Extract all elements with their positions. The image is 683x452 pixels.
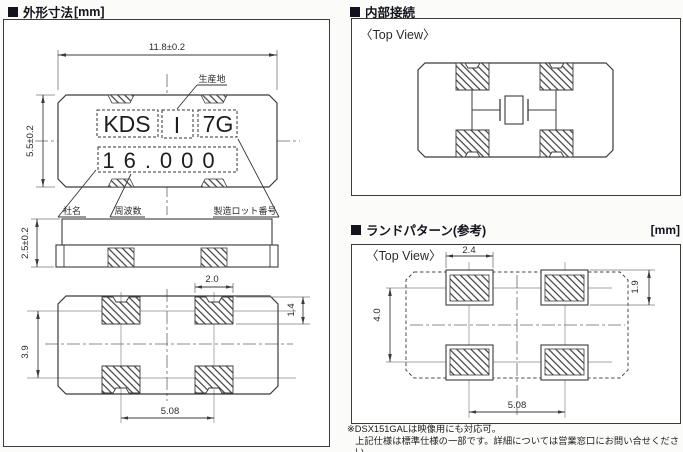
land-pattern-header: ランドパターン(参考) [mm] (351, 220, 680, 239)
land-title-text: ランドパターン(参考) (366, 220, 486, 239)
dim-thickness: 2.5±0.2 (20, 219, 60, 267)
dim-land-col-pitch: 5.08 (469, 400, 565, 414)
internal-view-label: 〈Top View〉 (360, 28, 436, 42)
internal-panel: 〈Top View〉 (351, 18, 681, 196)
dim-row-pitch: 3.9 (20, 311, 40, 378)
marking-frequency: 16.000 (102, 148, 223, 173)
outline-bottom-view-drawing: 2.0 1.4 3.9 (20, 274, 310, 423)
castellation-pad (201, 179, 227, 187)
land-unit: [mm] (651, 223, 680, 237)
marking-company: KDS (103, 111, 150, 137)
side-pad (108, 248, 134, 267)
label-company: 社名 (63, 205, 81, 216)
outline-top-view-drawing: KDS I 7G 16.000 11.8±0.2 (25, 42, 300, 217)
side-body (62, 219, 272, 245)
castellation-pad (108, 95, 134, 103)
section-marker-icon (350, 7, 360, 17)
footnote-line2: 上記仕様は標準仕様の一部です。詳細については営業窓口にお問い合せください。 (347, 436, 681, 452)
dim-col-pitch-text: 5.08 (161, 406, 180, 417)
footnote-line1: ※DSX151GALは映像用にも対応可。 (347, 424, 681, 436)
label-lot: 製造ロット番号 (213, 205, 276, 216)
dim-land-height-text: 1.9 (630, 280, 641, 293)
land-panel: 〈Top View〉 (351, 244, 681, 424)
marking-origin: I (174, 112, 180, 138)
marking-lot: 7G (203, 111, 234, 137)
castellation-pad (108, 179, 134, 187)
label-frequency: 周波数 (114, 205, 141, 216)
dim-body-width: 11.8±0.2 (58, 42, 277, 90)
dim-pad-width-text: 2.0 (205, 274, 218, 285)
dim-col-pitch: 5.08 (121, 406, 214, 420)
section-title-land: ランドパターン(参考) (351, 220, 486, 239)
dim-land-col-pitch-text: 5.08 (508, 400, 527, 411)
dim-land-width: 2.4 (446, 245, 493, 268)
side-base (56, 245, 278, 267)
outline-unit: [mm] (74, 5, 105, 19)
castellation-pad (201, 95, 227, 103)
land-view-label: 〈Top View〉 (366, 249, 442, 263)
section-marker-icon (8, 7, 18, 17)
outline-panel: KDS I 7G 16.000 11.8±0.2 (3, 19, 330, 447)
dim-row-pitch-text: 3.9 (20, 345, 31, 358)
dim-body-height-text: 5.5±0.2 (25, 125, 36, 157)
dim-thickness-text: 2.5±0.2 (20, 227, 31, 259)
dim-pad-height-text: 1.4 (286, 303, 297, 316)
package-outline (58, 95, 277, 187)
section-marker-icon (351, 225, 361, 235)
dim-body-width-text: 11.8±0.2 (149, 42, 185, 53)
dim-land-height: 1.9 (590, 270, 655, 305)
dim-land-row-pitch-text: 4.0 (372, 308, 383, 321)
side-pad (201, 248, 227, 267)
outline-side-view-drawing: 2.5±0.2 (20, 219, 278, 267)
outline-drawing: KDS I 7G 16.000 11.8±0.2 (4, 20, 329, 446)
internal-drawing: 〈Top View〉 (352, 19, 680, 195)
dim-pad-width: 2.0 (195, 274, 233, 293)
datasheet-page: 外形寸法[mm] 内部接続 ランドパターン(参考) [mm] (0, 0, 683, 452)
label-origin: 生産地 (198, 73, 225, 84)
dim-land-width-text: 2.4 (462, 245, 475, 256)
dim-land-row-pitch: 4.0 (372, 288, 392, 362)
land-drawing: 〈Top View〉 (352, 245, 680, 423)
dim-pad-height: 1.4 (236, 297, 310, 324)
footnote: ※DSX151GALは映像用にも対応可。 上記仕様は標準仕様の一部です。詳細につ… (347, 424, 681, 452)
